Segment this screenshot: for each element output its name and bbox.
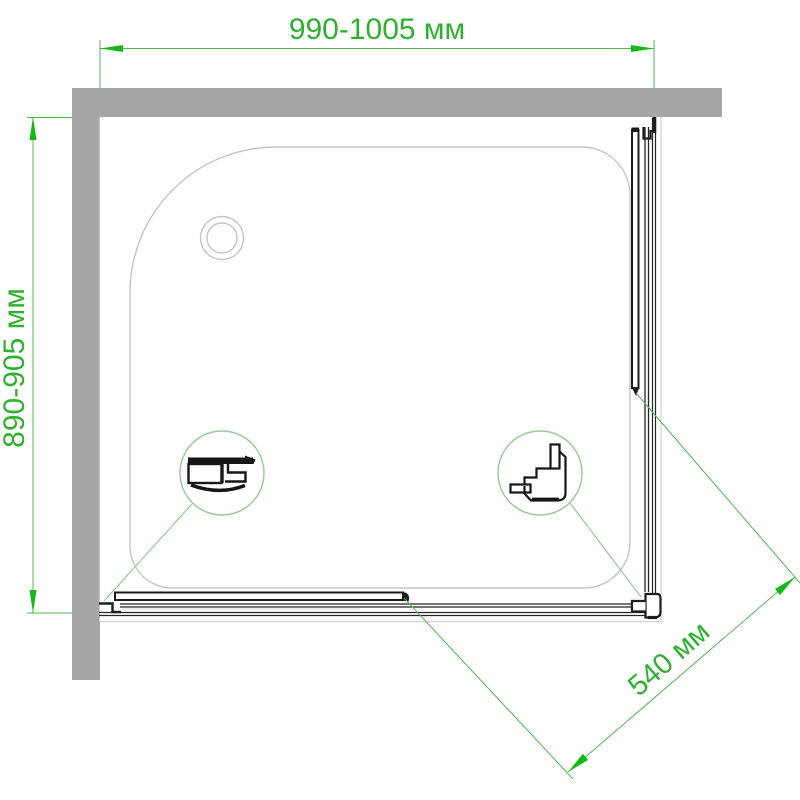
- right-detail-vertical-bar: [551, 445, 560, 469]
- enclosure-plan-svg: 990-1005 мм 890-905 мм 540 мм: [0, 0, 800, 800]
- depth-arrow-bottom-icon: [30, 590, 37, 613]
- width-dimension: [100, 40, 654, 88]
- width-arrow-right-icon: [631, 45, 654, 52]
- diagonal-extension-lower: [404, 598, 573, 779]
- depth-dimension: [27, 117, 72, 613]
- bottom-sliding-door-panel: [115, 593, 403, 601]
- diagonal-arrow-upper-icon: [775, 577, 795, 595]
- right-detail-circle: [498, 431, 582, 515]
- right-frame: [645, 118, 656, 620]
- diagonal-dimension-line: [568, 577, 795, 772]
- diagonal-dimension-label: 540 мм: [622, 616, 716, 703]
- left-detail-channel-box: [189, 464, 222, 483]
- frame-outline: [99, 117, 661, 622]
- bottom-frame: [99, 604, 656, 616]
- shower-tray-basin: [130, 147, 630, 588]
- width-dimension-label: 990-1005 мм: [289, 13, 465, 46]
- depth-dimension-label: 890-905 мм: [0, 288, 31, 448]
- left-detail-leader-line: [104, 504, 192, 601]
- depth-arrow-top-icon: [30, 117, 37, 140]
- right-door-top-cap: [632, 128, 640, 133]
- right-door-bottom-cap: [632, 387, 640, 396]
- corner-profile-step: [632, 601, 646, 612]
- corner-profile-body: [646, 594, 661, 618]
- left-wall: [72, 88, 100, 680]
- diagonal-dimension: [404, 393, 800, 779]
- diagonal-arrow-lower-icon: [568, 754, 588, 772]
- top-wall: [72, 88, 722, 117]
- width-arrow-left-icon: [100, 45, 123, 52]
- bottom-left-step-profile: [99, 604, 121, 613]
- shower-enclosure-plan: 990-1005 мм 890-905 мм 540 мм: [0, 0, 800, 800]
- right-detail-left-arm: [511, 485, 531, 493]
- drain-inner-circle: [207, 223, 237, 253]
- right-sliding-door-panel: [632, 130, 639, 388]
